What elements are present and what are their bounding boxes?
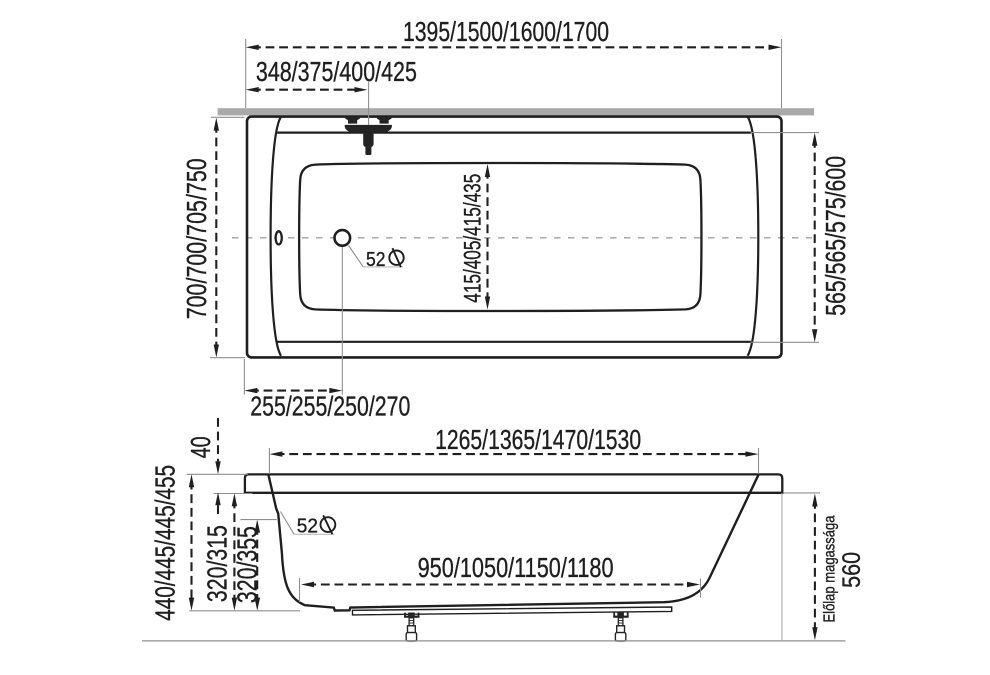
svg-text:52: 52 — [297, 515, 318, 538]
svg-text:700/700/705/750: 700/700/705/750 — [181, 158, 212, 319]
svg-text:1395/1500/1600/1700: 1395/1500/1600/1700 — [403, 16, 609, 47]
svg-text:348/375/400/425: 348/375/400/425 — [256, 56, 417, 87]
svg-text:565/565/575/600: 565/565/575/600 — [820, 156, 851, 316]
svg-text:950/1050/1150/1180: 950/1050/1150/1180 — [418, 552, 614, 583]
svg-text:1265/1365/1470/1530: 1265/1365/1470/1530 — [435, 424, 641, 455]
svg-text:40: 40 — [185, 436, 216, 458]
svg-text:440/445/445/455: 440/445/445/455 — [150, 465, 181, 621]
svg-text:255/255/250/270: 255/255/250/270 — [250, 391, 410, 422]
svg-text:52: 52 — [366, 248, 386, 271]
svg-text:Előlap magassága: Előlap magassága — [822, 515, 839, 622]
svg-text:320/315: 320/315 — [202, 525, 233, 602]
svg-text:415/405/415/435: 415/405/415/435 — [460, 174, 487, 303]
svg-text:560: 560 — [838, 552, 866, 588]
svg-text:320/355: 320/355 — [231, 526, 262, 603]
